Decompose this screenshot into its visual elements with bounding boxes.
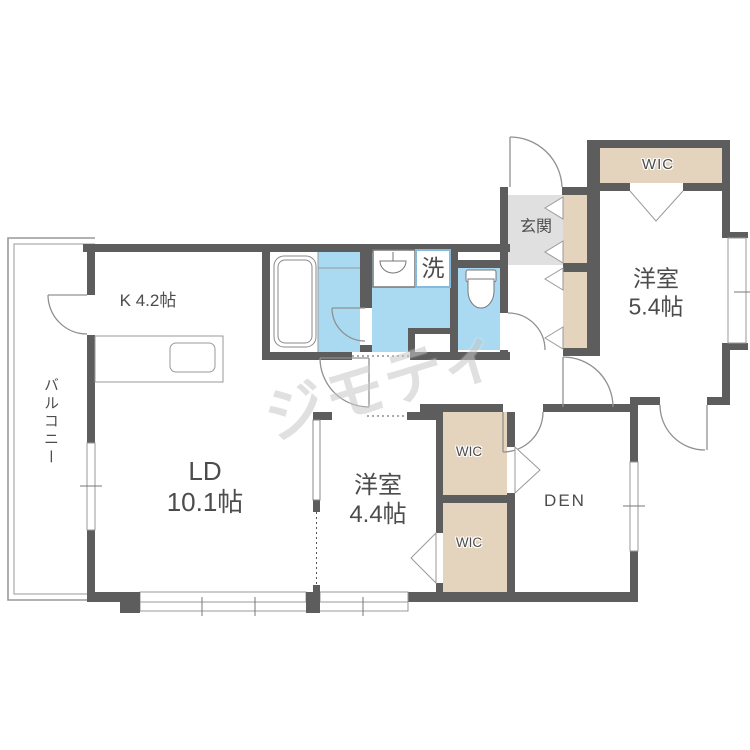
- bathroom-floor: [318, 252, 360, 352]
- bedroom-large-label-line2: 5.4帖: [629, 293, 684, 321]
- bedroom-large-door: [563, 357, 613, 407]
- wic-upper-fold-mark: [515, 447, 540, 493]
- window-mullion-block: [306, 592, 320, 613]
- bedroom-small-label-line1: 洋室: [349, 472, 406, 501]
- wic-upper-label: WIC: [456, 444, 482, 460]
- balcony-label: バルコニー: [41, 377, 59, 467]
- kitchen-label: K 4.2帖: [120, 291, 177, 311]
- entry-door-gap: [508, 187, 562, 195]
- floorplan-page: K 4.2帖 LD 10.1帖 洋室 4.4帖 洋室 5.4帖 DEN WIC …: [0, 0, 750, 750]
- bedroom-large-label-line1: 洋室: [629, 265, 684, 293]
- wic-main-door-gap: [630, 183, 683, 191]
- living-dining-label-line2: 10.1帖: [167, 487, 244, 518]
- bedroom-large-label: 洋室 5.4帖: [629, 265, 684, 320]
- hall-closet-fill: [563, 272, 587, 348]
- kitchen-counter: [95, 336, 223, 382]
- laundry-label: 洗: [422, 255, 445, 283]
- den-label: DEN: [544, 491, 586, 511]
- bedroom-small-label: 洋室 4.4帖: [349, 472, 406, 530]
- living-dining-label: LD 10.1帖: [167, 456, 244, 518]
- partition-foot: [313, 585, 320, 592]
- wic-lower-fold-mark: [411, 533, 436, 583]
- toilet-door-gap: [500, 313, 508, 350]
- bedroom-small-label-line2: 4.4帖: [349, 501, 406, 530]
- washbasin: [373, 250, 415, 287]
- entry-door: [510, 137, 562, 187]
- bedroom-small-south-window: [320, 592, 408, 602]
- toilet-door: [508, 313, 545, 350]
- hall-closet-mark-2: [545, 327, 563, 349]
- ld-south-window: [140, 592, 306, 602]
- kitchen-balcony-door-gap: [87, 295, 95, 335]
- kitchen-balcony-door: [48, 295, 87, 334]
- hall-closet-mark-1: [545, 268, 563, 290]
- kitchen-sink: [170, 343, 215, 372]
- wic-main-label: WIC: [642, 156, 674, 174]
- bedroom-large-window: [728, 238, 746, 343]
- wic-lower-label: WIC: [456, 535, 482, 551]
- wic-lower-door-gap: [436, 533, 443, 583]
- window-bay: [140, 602, 408, 611]
- wic-upper-door-gap: [507, 447, 515, 493]
- wic-main-fold-mark: [630, 191, 683, 221]
- bedroom-large-terrace-door: [660, 405, 707, 450]
- den-door-gap: [503, 404, 543, 412]
- living-dining-label-line1: LD: [167, 456, 244, 487]
- shoe-closet-fill: [563, 195, 587, 263]
- bedroom-large-terrace-door-gap: [660, 397, 707, 405]
- bathtub: [274, 256, 316, 347]
- entrance-label: 玄関: [520, 217, 552, 236]
- window-corner-block: [120, 592, 140, 613]
